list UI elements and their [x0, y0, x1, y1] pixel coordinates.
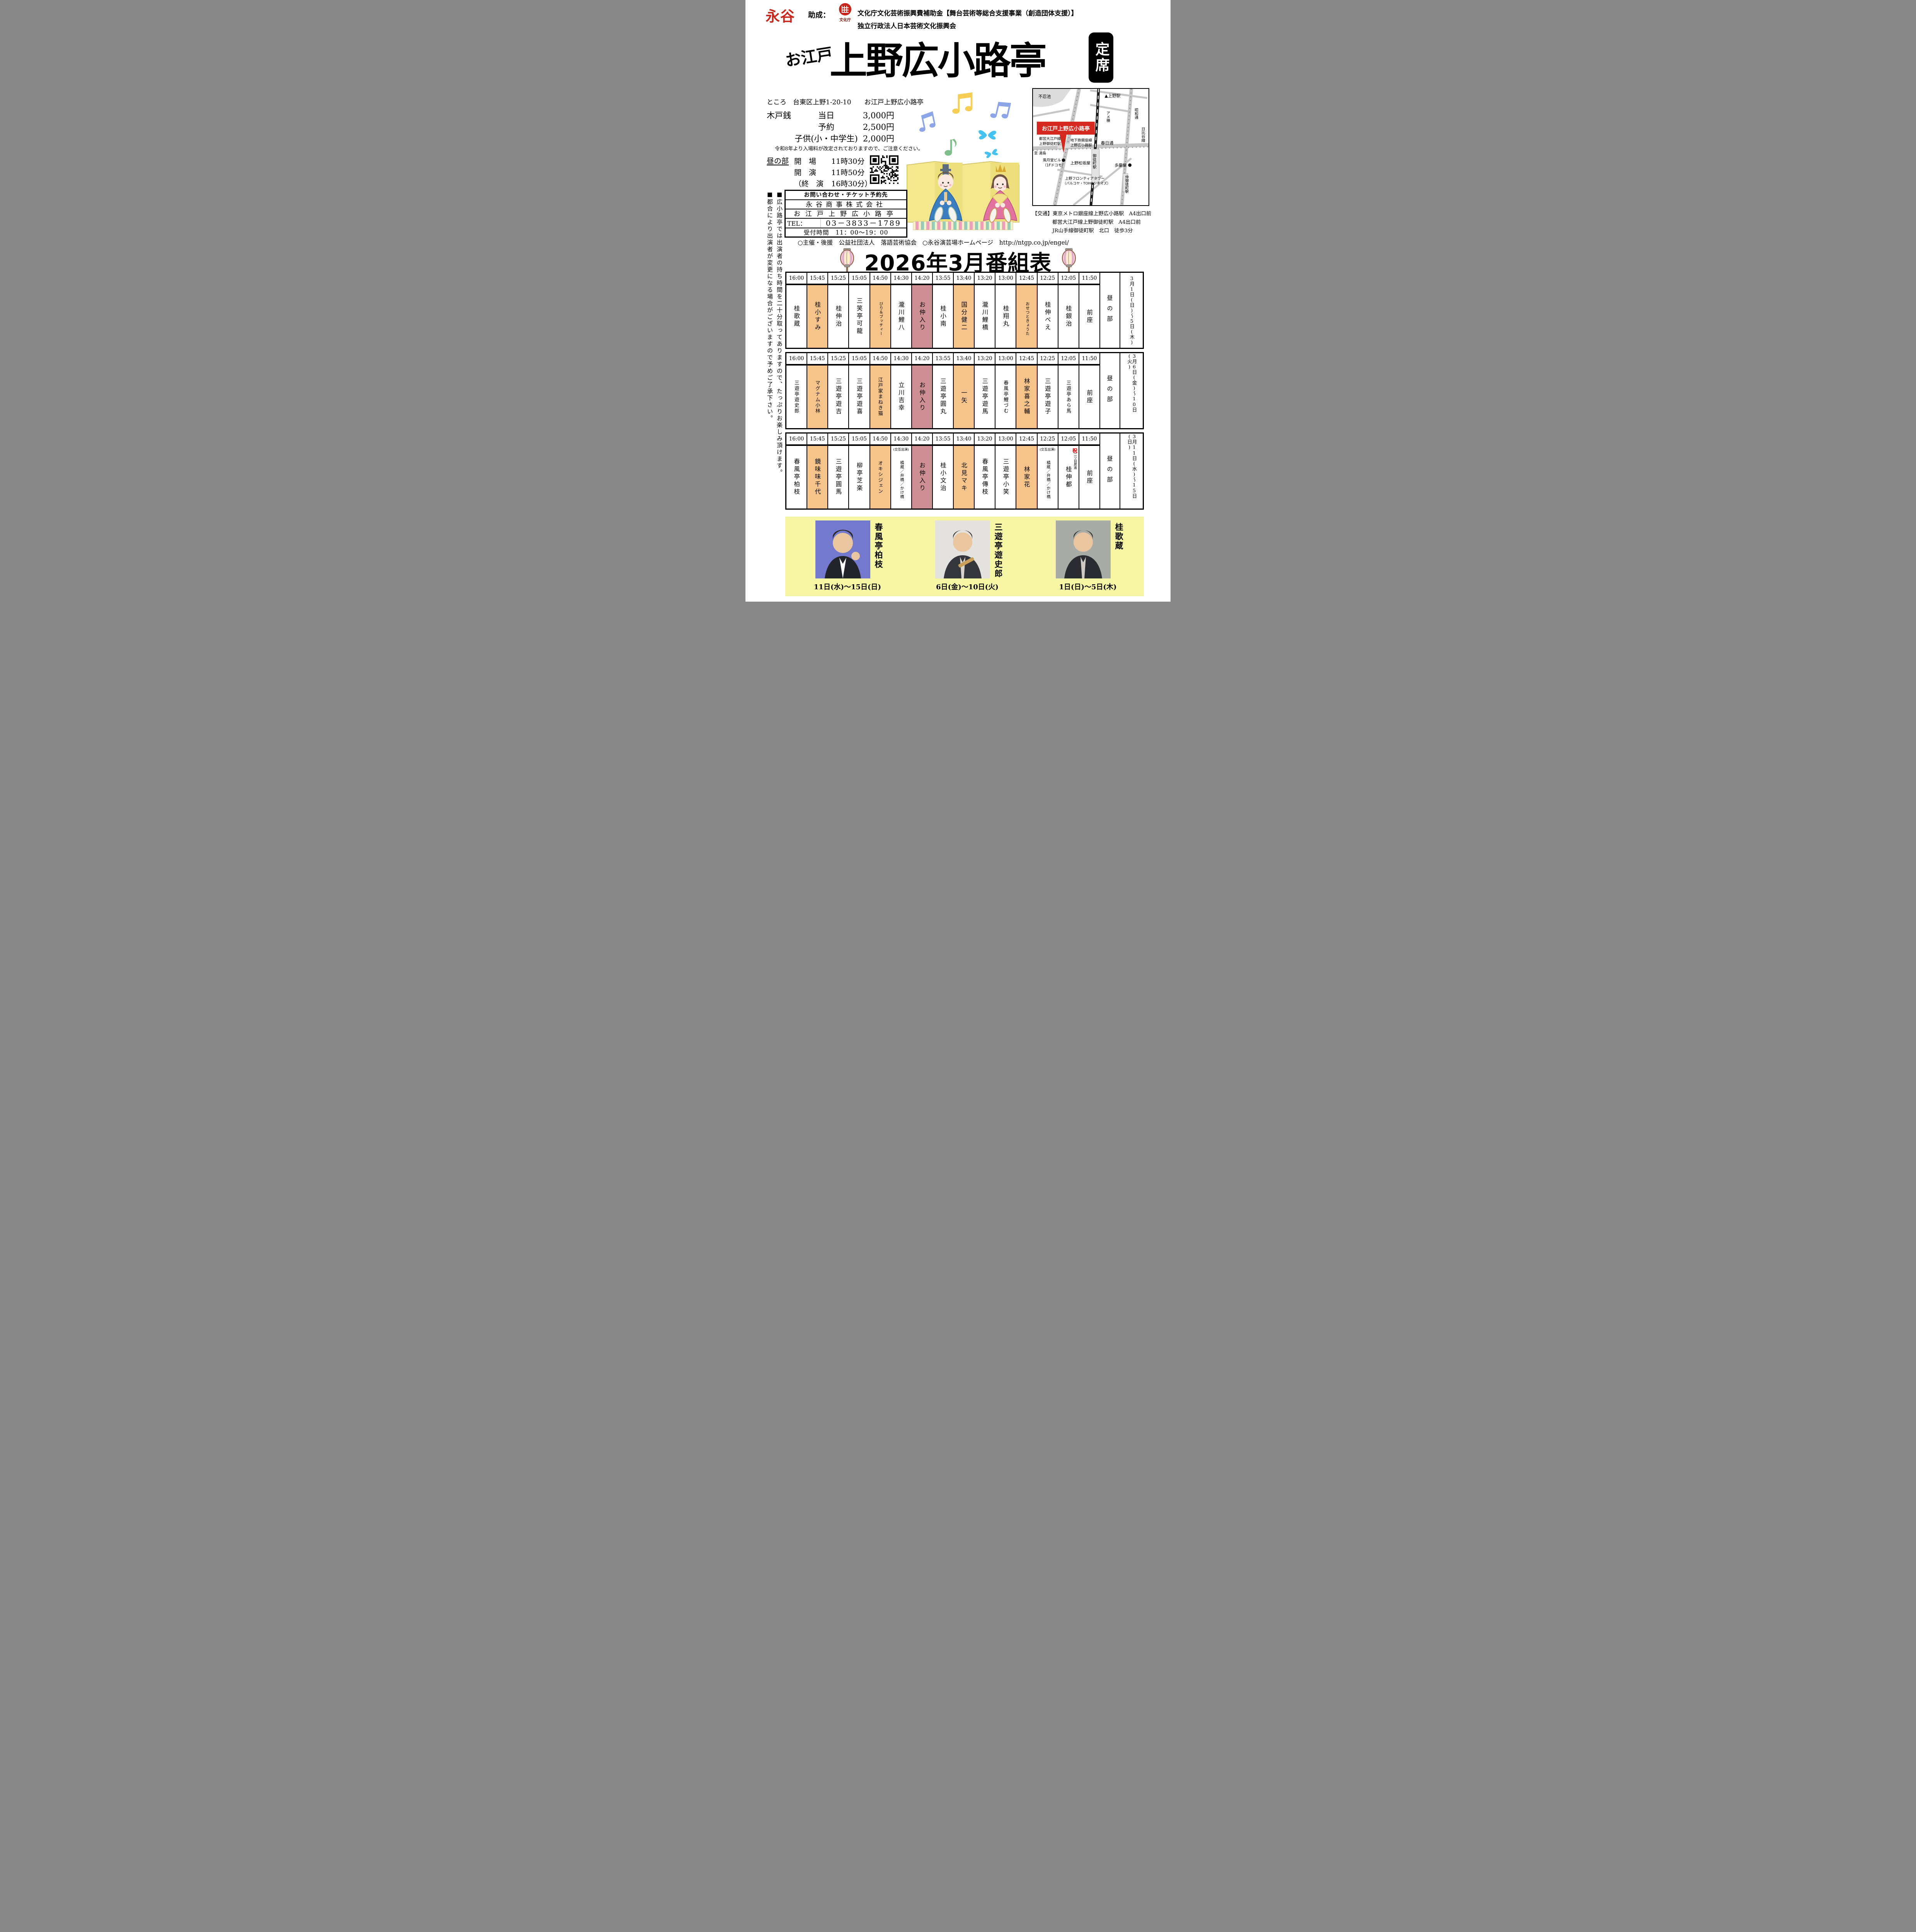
performer-name: 北見マキ	[961, 462, 967, 492]
date-range-cell: 3月6日(金)～10日(火)	[1120, 353, 1143, 428]
time-header: 12:25	[1038, 353, 1058, 365]
performer-name: 橘蔵／弁橋／かけ橋	[1045, 461, 1050, 499]
featured-performer-name: 三遊亭遊史郎	[992, 523, 1004, 578]
program-cell: 祝二ツ目昇進桂伸都	[1058, 446, 1079, 509]
interval-cell: お仲入り	[912, 446, 932, 509]
lantern-icon	[1061, 248, 1077, 276]
price-row: 木戸銭 当日 3,000円	[767, 109, 894, 121]
map-label-frontier-note: （パルコヤ・TOHOシネマズ）	[1063, 181, 1111, 186]
performer-name: 三遊亭圓丸	[940, 378, 946, 416]
performer-name: 鏡味味千代	[814, 458, 820, 496]
featured-performer-dates: 1日(日)～5日(木)	[1040, 582, 1136, 592]
map-label-hibiya-line: 日比谷線	[1141, 127, 1145, 142]
program-cell: 桂銀治	[1058, 285, 1079, 348]
time-header: 15:05	[849, 353, 869, 365]
program-cell: 林家花	[1016, 446, 1036, 509]
hina-dolls-illustration	[905, 160, 1021, 231]
performer-name: 三遊亭圓馬	[835, 458, 841, 496]
performer-name: 立川吉幸	[898, 382, 904, 412]
program-cell: 林家喜之輔	[1016, 366, 1036, 428]
time-header: 15:25	[828, 353, 848, 365]
interval-cell: お仲入り	[912, 366, 932, 428]
program-cell: (交互出演)橘蔵／弁橋／かけ橋	[891, 446, 911, 509]
performer-name: マグナム小林	[815, 380, 820, 414]
website-line: ○永谷演芸場ホームページ http://ntgp.co.jp/engei/	[922, 238, 1069, 247]
performer-name: 桂歌蔵	[793, 305, 800, 328]
map-label-pond: 不忍池	[1038, 94, 1051, 99]
tel-number: 03－3833－1789	[821, 219, 906, 228]
time-header: 13:00	[995, 434, 1016, 445]
performer-name: 桂翔丸	[1002, 305, 1009, 328]
performer-name: 春風亭鯉づむ	[1003, 380, 1008, 414]
time-header: 13:40	[954, 353, 974, 365]
time-header: 14:30	[891, 434, 911, 445]
notice-text: ■広小路亭では出演者の持ち時間を二十分取ってありますので、たっぷりお楽しみ頂けま…	[774, 191, 784, 504]
performer-name: 桂伸都	[1065, 466, 1072, 489]
time-header: 14:50	[870, 353, 890, 365]
map-label-kasuga-dori: 春日通	[1101, 141, 1114, 146]
time-header: 15:45	[807, 434, 827, 445]
access-info: 【交通】東京メトロ銀座線上野広小路駅 A4出口前 都営大江戸線上野御徒町駅 A4…	[1032, 210, 1156, 235]
program-cell: 桂小すみ	[807, 285, 827, 348]
program-cell: マグナム小林	[807, 366, 827, 428]
bunkacho-logo: 文化庁	[837, 3, 854, 22]
map-label-matsuzakaya: 上野松坂屋	[1070, 160, 1091, 165]
venue-address-line: ところ 台東区上野1-20-10 お江戸上野広小路亭	[767, 97, 924, 106]
time-header: 15:05	[849, 434, 869, 445]
nagatani-logo: 永谷	[766, 5, 795, 26]
price-value: 2,000円	[859, 133, 894, 144]
interval-cell: お仲入り	[912, 285, 932, 348]
performer-name: 三遊亭遊馬	[982, 378, 988, 416]
music-note-icon	[915, 109, 939, 136]
time-header: 13:40	[954, 434, 974, 445]
performer-name: 三遊亭小笑	[1002, 458, 1009, 496]
time-header: 14:50	[870, 273, 890, 284]
map-label-ueno-hirokoji: 上野広小路駅	[1070, 143, 1092, 148]
time-header: 12:25	[1038, 434, 1058, 445]
program-cell: 三遊亭遊史郎	[786, 366, 807, 428]
map-label-fugetsudo: 風月堂ビル	[1043, 158, 1061, 163]
time-header: 15:45	[807, 353, 827, 365]
performer-name: 桂小すみ	[814, 301, 820, 332]
map-label-showa-dori: 昭和通	[1134, 108, 1138, 119]
time-header: 16:00	[786, 273, 807, 284]
time-header: 16:00	[786, 434, 807, 445]
time-header: 13:55	[933, 434, 953, 445]
performer-name: 桂銀治	[1065, 305, 1072, 328]
time-header: 15:25	[828, 273, 848, 284]
session-cell: 昼の部	[1100, 353, 1120, 428]
program-cell: 三遊亭小笑	[995, 446, 1016, 509]
map-venue-label: お江戸上野広小路亭	[1042, 126, 1090, 132]
time-header: 12:05	[1058, 353, 1079, 365]
program-cell: びり＆ブッチィー	[870, 285, 890, 348]
contact-title: お問い合わせ・チケット予約先	[786, 191, 906, 199]
lantern-icon	[839, 248, 855, 276]
time-header: 13:20	[975, 273, 995, 284]
map-label-ameyoko: アメ横	[1106, 111, 1110, 122]
performer-name: 三遊亭遊子	[1045, 378, 1051, 416]
program-cell: 一矢	[954, 366, 974, 428]
program-cell: 北見マキ	[954, 446, 974, 509]
price-row: 予約 2,500円	[767, 121, 894, 133]
performer-name: 三遊亭遊吉	[835, 378, 841, 416]
time-header: 14:30	[891, 353, 911, 365]
time-header: 12:05	[1058, 434, 1079, 445]
grant-label: 助成：	[808, 9, 830, 20]
price-note: 令和8年より入場料が改定されておりますので、ご注意ください。	[775, 145, 923, 152]
performer-name: お仲入り	[919, 301, 925, 332]
featured-performer-dates: 11日(水)～15日(日)	[799, 582, 896, 592]
showtime-row: 開 演 11時50分	[794, 167, 872, 178]
time-header: 14:20	[912, 353, 932, 365]
performer-photo	[935, 520, 990, 578]
title-prefix: お江戸	[783, 41, 834, 71]
time-header: 12:45	[1016, 434, 1036, 445]
featured-strip: 春風亭柏枝 三遊亭遊史郎 桂歌蔵 11日(水)～15日(日) 6日(金)～10日…	[785, 517, 1144, 596]
rotation-note: (交互出演)	[891, 447, 911, 452]
session-cell: 昼の部	[1100, 434, 1120, 509]
program-cell: 前座	[1079, 285, 1099, 348]
time-header: 11:50	[1079, 353, 1099, 365]
program-cell: 三遊亭遊馬	[975, 366, 995, 428]
map-label-okachimachi: 御徒町駅	[1092, 153, 1096, 169]
time-header: 14:30	[891, 273, 911, 284]
showtime-block: 昼の部 開 場 11時30分 開 演 11時50分 （終 演 16時30分）	[767, 155, 872, 189]
program-cell: 春風亭柏枝	[786, 446, 807, 509]
time-header: 14:20	[912, 273, 932, 284]
program-cell: 三遊亭あら馬	[1058, 366, 1079, 428]
music-note-icon	[943, 136, 960, 156]
butterfly-icon	[977, 125, 999, 144]
session-label: 昼の部	[767, 155, 789, 165]
rotation-note: (交互出演)	[1038, 447, 1058, 452]
performer-name: 春風亭柏枝	[793, 458, 800, 496]
performer-name: 桂伸べえ	[1045, 301, 1051, 332]
date-range-cell: 3月1日(日)～5日(木)	[1120, 273, 1143, 348]
page-title: 上野広小路亭	[830, 30, 1045, 85]
program-cell: 前座	[1079, 446, 1099, 509]
time-header: 12:25	[1038, 273, 1058, 284]
performer-name: 桂伸治	[835, 305, 841, 328]
program-cell: 春風亭鯉づむ	[995, 366, 1016, 428]
time-header: 13:55	[933, 353, 953, 365]
map-label-ueno-station: ▲上野駅	[1105, 94, 1121, 99]
program-cell: (交互出演)橘蔵／弁橋／かけ橋	[1038, 446, 1058, 509]
program-cell: 三遊亭遊吉	[828, 366, 848, 428]
program-cell: 柳亭芝楽	[849, 446, 869, 509]
performer-name: 前座	[1086, 389, 1092, 405]
time-header: 13:40	[954, 273, 974, 284]
access-map: お江戸上野広小路亭 不忍池 ▲上野駅 アメ横 昭和通 日比谷線 都営大江戸線 上…	[1032, 88, 1149, 206]
session-cell: 昼の部	[1100, 273, 1120, 348]
notice-column: ■広小路亭では出演者の持ち時間を二十分取ってありますので、たっぷりお楽しみ頂けま…	[765, 191, 784, 504]
performer-name: 三笑亭可龍	[856, 298, 862, 335]
program-cell: 三笑亭可龍	[849, 285, 869, 348]
map-label-takeya: 多慶屋	[1115, 163, 1126, 168]
organizer-line: ○主催・後援 公益社団法人 落語芸術協会	[798, 238, 917, 247]
promotion-note: 二ツ目昇進	[1073, 453, 1077, 469]
program-cell: オキシジェン	[870, 446, 890, 509]
performer-photo	[815, 520, 870, 578]
program-cell: 鏡味味千代	[807, 446, 827, 509]
schedule-block: 16:00三遊亭遊史郎15:45マグナム小林15:25三遊亭遊吉15:05三遊亭…	[785, 352, 1144, 429]
performer-name: 瀧川鯉橋	[982, 301, 988, 332]
contact-box: お問い合わせ・チケット予約先 永谷商事株式会社 お江戸上野広小路亭 TEL： 0…	[784, 190, 907, 238]
bunkacho-caption: 文化庁	[837, 17, 854, 22]
performer-name: 江戸家まねき猫	[878, 377, 883, 417]
teiseki-badge: 定席	[1089, 32, 1113, 83]
program-cell: 桂伸べえ	[1038, 285, 1058, 348]
schedule-block: 16:00春風亭柏枝15:45鏡味味千代15:25三遊亭圓馬15:05柳亭芝楽1…	[785, 432, 1144, 510]
time-header: 13:00	[995, 353, 1016, 365]
performer-name: 林家花	[1023, 466, 1029, 489]
program-cell: 桂伸治	[828, 285, 848, 348]
program-cell: 桂歌蔵	[786, 285, 807, 348]
program-cell: 国分健二	[954, 285, 974, 348]
tel-label: TEL：	[786, 219, 821, 228]
performer-name: おせつときょうた	[1024, 302, 1029, 336]
program-cell: 桂翔丸	[995, 285, 1016, 348]
time-header: 12:05	[1058, 273, 1079, 284]
time-header: 11:50	[1079, 434, 1099, 445]
funding-line-2: 独立行政法人日本芸術文化振興会	[858, 20, 956, 30]
contact-venue: お江戸上野広小路亭	[786, 209, 906, 218]
time-header: 12:45	[1016, 273, 1036, 284]
performer-name: オキシジェン	[878, 461, 883, 494]
date-range-cell: 3月11日(水)～15日(日)	[1120, 434, 1143, 509]
performer-name: 林家喜之輔	[1023, 378, 1029, 416]
hours-value: 11：00～19：00	[835, 229, 888, 236]
performer-name: お仲入り	[919, 382, 925, 412]
time-header: 15:25	[828, 434, 848, 445]
bunkacho-emblem-icon	[839, 3, 851, 15]
time-header: 15:05	[849, 273, 869, 284]
featured-performer-name: 桂歌蔵	[1113, 523, 1125, 551]
performer-name: 春風亭傳枝	[982, 458, 988, 496]
performer-name: 三遊亭遊史郎	[794, 380, 799, 414]
program-cell: 三遊亭遊喜	[849, 366, 869, 428]
program-cell: おせつときょうた	[1016, 285, 1036, 348]
price-row: 子供(小・中学生) 2,000円	[767, 133, 894, 144]
program-cell: 桂小南	[933, 285, 953, 348]
time-header: 12:45	[1016, 353, 1036, 365]
program-cell: 瀧川鯉八	[891, 285, 911, 348]
time-header: 11:50	[1079, 273, 1099, 284]
poster-page: 永谷 助成： 文化庁 文化庁文化芸術振興費補助金【舞台芸術等総合支援事業（創造団…	[745, 0, 1171, 602]
showtime-row: （終 演 16時30分）	[794, 178, 872, 189]
hours-label: 受付時間	[804, 229, 829, 236]
program-cell: 三遊亭圓丸	[933, 366, 953, 428]
performer-name: 一矢	[961, 389, 967, 405]
map-label-fugetsudo-note: （1Fドコモ）	[1043, 163, 1065, 167]
performer-name: 瀧川鯉八	[898, 301, 904, 332]
map-label-frontier: 上野フロンティアタワー	[1065, 177, 1104, 181]
featured-performer-name: 春風亭柏枝	[873, 523, 884, 569]
price-label: 木戸銭	[767, 109, 794, 121]
performer-name: 柳亭芝楽	[856, 462, 862, 492]
performer-name: 前座	[1086, 470, 1092, 485]
notice-text: ■都合により出演者が変更になる場合がございますので予めご了承下さい。	[765, 191, 774, 504]
map-label-to-yushima: 至 湯島	[1034, 151, 1046, 156]
time-header: 14:50	[870, 434, 890, 445]
contact-company: 永谷商事株式会社	[786, 199, 906, 209]
program-cell: 瀧川鯉橋	[975, 285, 995, 348]
performer-name: 橘蔵／弁橋／かけ橋	[899, 461, 903, 499]
performer-name: 三遊亭遊喜	[856, 378, 862, 416]
showtime-row: 開 場 11時30分	[794, 155, 872, 167]
price-table: 木戸銭 当日 3,000円 予約 2,500円 子供(小・中学生) 2,000円	[767, 109, 894, 144]
program-cell: 前座	[1079, 366, 1099, 428]
time-header: 15:45	[807, 273, 827, 284]
price-value: 3,000円	[859, 109, 894, 121]
funding-line-1: 文化庁文化芸術振興費補助金【舞台芸術等総合支援事業（創造団体支援）】	[858, 8, 1078, 17]
price-type: 当日	[794, 109, 859, 121]
performer-photo	[1056, 520, 1111, 578]
contact-hours-row: 受付時間 11：00～19：00	[786, 228, 906, 236]
map-label-naka-okachimachi: 仲御徒町駅	[1124, 175, 1129, 193]
contact-tel-row: TEL： 03－3833－1789	[786, 218, 906, 228]
time-header: 13:20	[975, 434, 995, 445]
qr-code	[870, 155, 898, 184]
map-label-oedo-line: 都営大江戸線	[1039, 136, 1061, 141]
performer-name: お仲入り	[919, 462, 925, 492]
program-cell: 桂小文治	[933, 446, 953, 509]
featured-performer-dates: 6日(金)～10日(火)	[919, 582, 1016, 592]
program-cell: 三遊亭遊子	[1038, 366, 1058, 428]
time-header: 13:55	[933, 273, 953, 284]
performer-name: 前座	[1086, 309, 1092, 324]
time-header: 14:20	[912, 434, 932, 445]
performer-name: 桂小南	[940, 305, 946, 328]
performer-name: 国分健二	[961, 301, 967, 332]
time-header: 13:20	[975, 353, 995, 365]
performer-name: びり＆ブッチィー	[878, 302, 882, 336]
time-header: 13:00	[995, 273, 1016, 284]
program-cell: 立川吉幸	[891, 366, 911, 428]
access-heading: 【交通】	[1032, 211, 1053, 217]
map-label-ginza-line: 地下鉄銀座線	[1070, 138, 1092, 143]
price-value: 2,500円	[859, 121, 894, 133]
time-header: 16:00	[786, 353, 807, 365]
price-type: 予約	[794, 121, 859, 133]
map-label-ueno-okachimachi: 上野御徒町駅	[1039, 141, 1061, 146]
music-note-icon	[986, 98, 1015, 124]
performer-name: 桂小文治	[940, 462, 946, 492]
program-cell: 春風亭傳枝	[975, 446, 995, 509]
performer-name: 三遊亭あら馬	[1066, 380, 1071, 414]
program-cell: 三遊亭圓馬	[828, 446, 848, 509]
schedule-block: 16:00桂歌蔵15:45桂小すみ15:25桂伸治15:05三笑亭可龍14:50…	[785, 272, 1144, 349]
music-note-icon	[949, 92, 976, 116]
program-cell: 江戸家まねき猫	[870, 366, 890, 428]
price-type: 子供(小・中学生)	[794, 133, 859, 144]
